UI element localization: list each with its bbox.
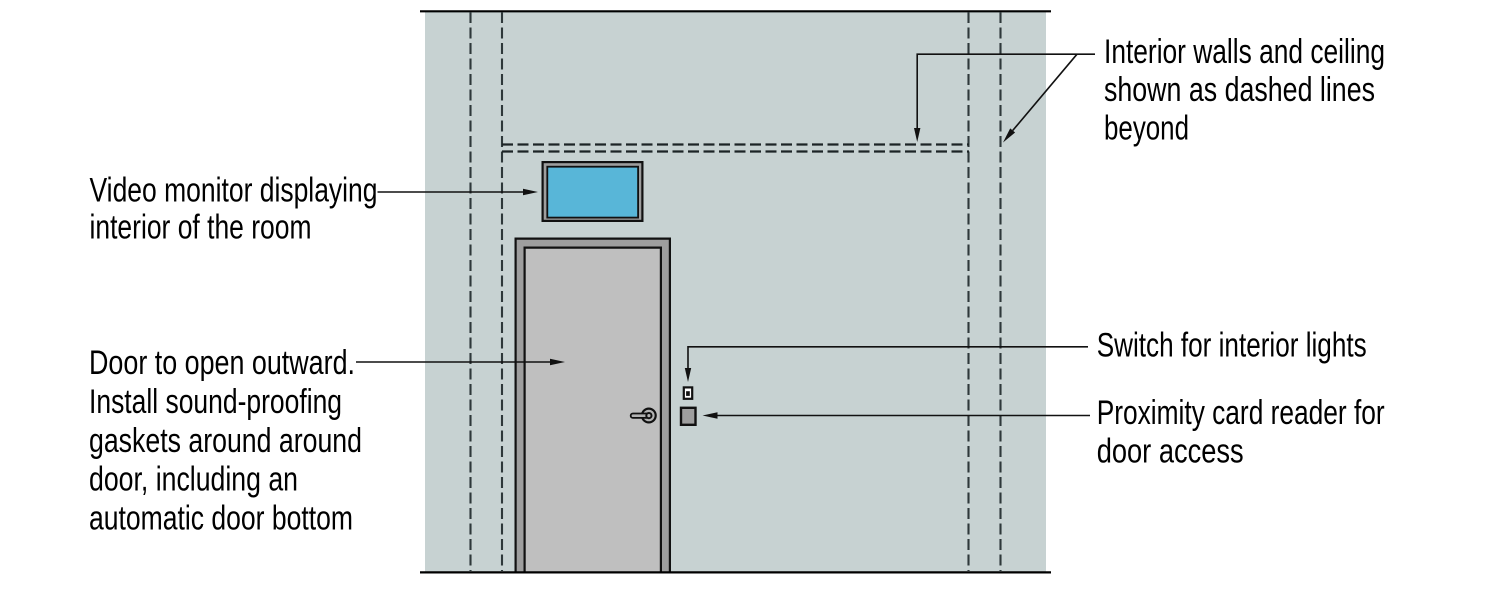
svg-text:automatic door bottom: automatic door bottom (89, 500, 353, 538)
svg-text:Switch for interior lights: Switch for interior lights (1097, 327, 1367, 365)
svg-text:Install sound-proofing: Install sound-proofing (89, 383, 342, 421)
svg-text:Proximity card reader for: Proximity card reader for (1097, 394, 1385, 432)
svg-text:interior of the room: interior of the room (90, 209, 312, 247)
svg-text:Video monitor displaying: Video monitor displaying (90, 172, 378, 210)
svg-text:door access: door access (1097, 432, 1244, 470)
svg-text:beyond: beyond (1104, 109, 1189, 147)
svg-text:Door to open outward.: Door to open outward. (89, 344, 355, 382)
svg-text:gaskets around around: gaskets around around (89, 422, 362, 460)
svg-text:Interior walls and ceiling: Interior walls and ceiling (1104, 33, 1385, 71)
svg-text:door, including an: door, including an (89, 461, 298, 499)
svg-text:shown as dashed lines: shown as dashed lines (1104, 71, 1375, 109)
